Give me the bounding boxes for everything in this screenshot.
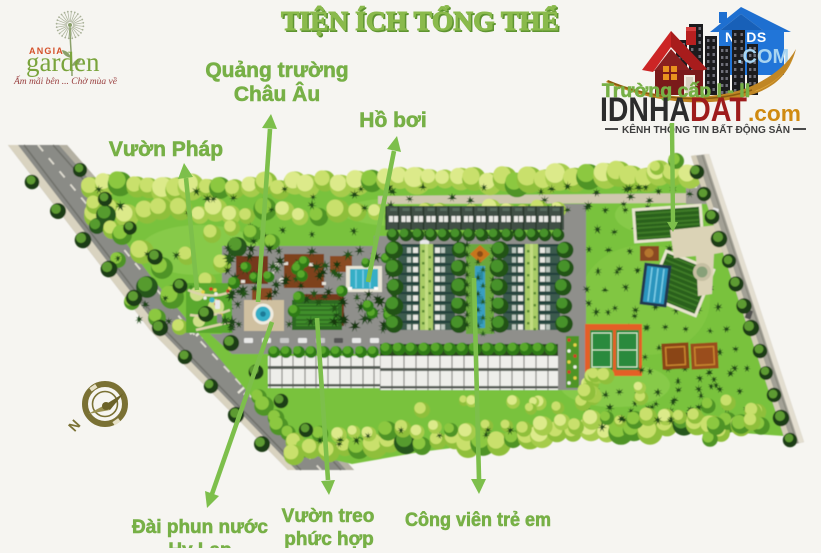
svg-text:Hy Lạp: Hy Lạp [168, 540, 231, 548]
svg-text:.COM: .COM [737, 46, 789, 68]
svg-text:Châu Âu: Châu Âu [234, 82, 320, 106]
svg-text:Công viên trẻ em: Công viên trẻ em [405, 510, 551, 531]
svg-text:Quảng trường: Quảng trường [205, 59, 348, 82]
svg-text:Vườn treo: Vườn treo [282, 506, 375, 527]
svg-text:TIỆN ÍCH TỔNG THỂ: TIỆN ÍCH TỔNG THỂ [281, 5, 559, 36]
svg-text:garden: garden [26, 47, 100, 77]
svg-text:NBDS: NBDS [725, 29, 767, 45]
svg-text:Đài phun nước: Đài phun nước [132, 517, 268, 538]
svg-text:phức hợp: phức hợp [284, 529, 374, 548]
svg-text:.com: .com [748, 101, 801, 126]
svg-text:KÊNH THÔNG TIN BẤT ĐỘNG SẢN: KÊNH THÔNG TIN BẤT ĐỘNG SẢN [622, 123, 790, 136]
svg-text:Vườn Pháp: Vườn Pháp [109, 138, 223, 161]
svg-text:Hồ bơi: Hồ bơi [359, 109, 426, 132]
